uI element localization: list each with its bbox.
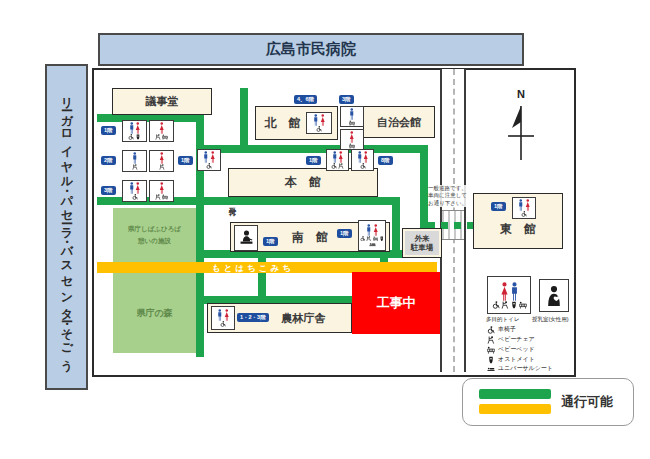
yellow-path-label: もとはちこみち	[212, 263, 294, 275]
floor-badge: 4、6階	[294, 95, 317, 104]
passable-legend-box: 通行可能	[462, 378, 634, 426]
road-notice-line3: お通り下さい。	[428, 200, 467, 207]
wheelchair-icon	[220, 321, 226, 327]
legend-item-label: 車椅子	[498, 325, 516, 334]
construction-label: 工事中	[377, 294, 416, 312]
woman-icon	[224, 309, 230, 321]
legend-multi-toilet-box	[487, 276, 531, 314]
legend-item-label: オストメイト	[498, 355, 535, 364]
man-icon	[332, 151, 338, 163]
legend-item-label: ベビーチェア	[498, 335, 535, 344]
toilet-box	[351, 149, 374, 171]
legend-item: オストメイト	[487, 355, 535, 364]
outpatient-parking-line1: 外来	[415, 234, 430, 243]
baby-bed-icon	[487, 346, 495, 354]
baby-chair-icon	[159, 164, 165, 170]
reception-desk-icon	[238, 229, 255, 248]
woman-icon	[373, 224, 379, 236]
woman-icon	[159, 152, 165, 164]
baby-chair-icon	[155, 194, 161, 200]
hospital-banner-label: 広島市民病院	[266, 40, 356, 59]
baby-bed-icon	[349, 120, 355, 126]
reception-label: 受付	[227, 201, 237, 203]
floor-badge: 1階	[263, 237, 278, 246]
woman-icon	[135, 122, 141, 134]
woman-icon	[210, 151, 216, 163]
floor-badge: 3階	[101, 186, 116, 195]
floor-badge: 1階	[306, 156, 321, 165]
wheelchair-icon	[331, 163, 337, 169]
woman-icon	[500, 282, 509, 301]
path-green-minami-right	[392, 197, 400, 258]
man-icon	[313, 114, 319, 126]
baby-bed-icon	[162, 194, 168, 200]
baby-chair-icon	[132, 164, 138, 170]
floor-badge: 3階	[339, 95, 354, 104]
legend-nursing-label: 授乳室(女性用)	[532, 316, 569, 323]
north-compass-icon	[500, 100, 544, 166]
floor-badge: 1階	[101, 126, 116, 135]
landmarks-label: リーガロイヤル・パセーラ・バスセンター・そごう	[58, 88, 75, 366]
woman-icon	[135, 182, 141, 194]
yellow-route-swatch	[479, 404, 551, 414]
woman-icon	[159, 182, 165, 194]
building-higashikan-label: 東 館	[500, 221, 536, 238]
legend-nursing-box	[539, 279, 569, 312]
facility-map-page: 広島市民病院 リーガロイヤル・パセーラ・バスセンター・そごう 県庁しばふひろば …	[0, 0, 650, 459]
building-honkan-label: 本 館	[285, 174, 321, 191]
wheelchair-icon	[360, 236, 366, 242]
toilet-box	[122, 120, 147, 142]
floor-badge: 1階	[178, 156, 193, 165]
building-norin-label: 農林庁舎	[282, 311, 326, 326]
building-jichikaikan: 自治会館	[363, 106, 435, 138]
road-notice: 一般道路です。 車両に注意して お通り下さい。	[428, 185, 467, 207]
north-label: N	[517, 88, 525, 100]
toilet-box	[340, 129, 364, 150]
legend-item: ベビーベッド	[487, 345, 535, 354]
building-jichikaikan-label: 自治会館	[377, 115, 421, 130]
path-green-mid-horizontal	[196, 145, 428, 153]
road-notice-line1: 一般道路です。	[428, 185, 467, 192]
building-gijido: 議事堂	[112, 88, 212, 115]
legend-multi-toilet-label: 多目的トイレ	[486, 316, 519, 323]
floor-badge: 1・2・3階	[237, 313, 269, 322]
building-kitakan-label: 北 館	[265, 115, 301, 132]
wheelchair-icon	[492, 301, 500, 309]
building-honkan: 本 館	[228, 168, 378, 197]
lawn-plaza-area: 県庁しばふひろば 憩いの施設	[113, 208, 196, 262]
outpatient-parking-inner: 外来 駐車場	[405, 231, 439, 255]
building-minamikan-label: 南 館	[292, 229, 328, 246]
legend-item: ユニバーサルシート	[487, 364, 553, 373]
man-icon	[366, 224, 372, 236]
woman-icon	[159, 122, 165, 134]
nursing-room-icon	[544, 284, 564, 308]
man-icon	[129, 122, 135, 134]
toilet-box	[358, 220, 386, 251]
legend-item-label: ユニバーサルシート	[498, 364, 553, 373]
hospital-banner: 広島市民病院	[98, 33, 524, 66]
baby-chair-icon	[487, 336, 495, 344]
baby-chair-icon	[501, 301, 509, 309]
ostomate-icon	[510, 301, 518, 309]
baby-bed-icon	[162, 134, 168, 140]
woman-icon	[525, 199, 531, 211]
building-gijido-label: 議事堂	[146, 94, 179, 109]
prefecture-forest-label: 県庁の森	[136, 307, 172, 320]
ostomate-icon	[135, 134, 141, 140]
construction-zone: 工事中	[352, 272, 440, 334]
green-route-swatch	[479, 389, 551, 399]
toilet-box	[122, 150, 147, 172]
wheelchair-icon	[132, 194, 138, 200]
path-green-north-stub	[240, 88, 248, 153]
woman-icon	[338, 151, 344, 163]
toilet-box	[197, 149, 221, 171]
floor-badge: 1階	[491, 202, 506, 211]
man-icon	[132, 152, 138, 164]
toilet-box	[340, 106, 364, 127]
toilet-box	[149, 150, 174, 172]
prefecture-forest-area: 県庁の森	[113, 273, 196, 353]
legend-item: 車椅子	[487, 325, 516, 334]
baby-chair-icon	[338, 163, 344, 169]
legend-item-label: ベビーベッド	[498, 345, 535, 354]
legend-item: ベビーチェア	[487, 335, 535, 344]
road-notice-line2: 車両に注意して	[428, 192, 467, 199]
universal-sheet-icon	[368, 241, 377, 247]
landmarks-sidebar: リーガロイヤル・パセーラ・バスセンター・そごう	[45, 64, 88, 390]
wheelchair-icon	[487, 326, 495, 334]
outpatient-parking: 外来 駐車場	[402, 228, 442, 258]
floor-badge: 8階	[378, 156, 393, 165]
wheelchair-icon	[206, 163, 212, 169]
man-icon	[203, 151, 209, 163]
floor-badge: 1階	[337, 229, 352, 238]
man-icon	[518, 199, 524, 211]
baby-bed-icon	[519, 301, 527, 309]
wheelchair-icon	[521, 211, 527, 217]
outpatient-parking-line2: 駐車場	[411, 243, 434, 252]
floor-badge: 2階	[101, 156, 116, 165]
toilet-box	[512, 197, 536, 219]
man-icon	[349, 108, 355, 120]
toilet-box	[306, 112, 332, 134]
ostomate-icon	[379, 236, 385, 242]
passable-legend-label: 通行可能	[561, 393, 613, 411]
man-icon	[217, 309, 223, 321]
lawn-plaza-line1: 県庁しばふひろば	[128, 225, 181, 234]
wheelchair-icon	[128, 134, 134, 140]
toilet-box	[149, 180, 174, 202]
ostomate-icon	[487, 356, 495, 364]
man-icon	[357, 151, 363, 163]
man-icon	[510, 282, 519, 301]
woman-icon	[349, 131, 355, 143]
woman-icon	[363, 151, 369, 163]
toilet-box	[122, 180, 147, 202]
woman-icon	[320, 114, 326, 126]
toilet-box	[326, 149, 349, 171]
universal-sheet-icon	[487, 365, 495, 372]
toilet-box	[149, 120, 174, 142]
wheelchair-icon	[316, 126, 322, 132]
baby-bed-icon	[349, 143, 355, 149]
man-icon	[129, 182, 135, 194]
reception-box	[234, 225, 258, 251]
wheelchair-icon	[360, 163, 366, 169]
baby-chair-icon	[155, 134, 161, 140]
lawn-plaza-line2: 憩いの施設	[138, 237, 171, 246]
toilet-box	[211, 306, 235, 330]
